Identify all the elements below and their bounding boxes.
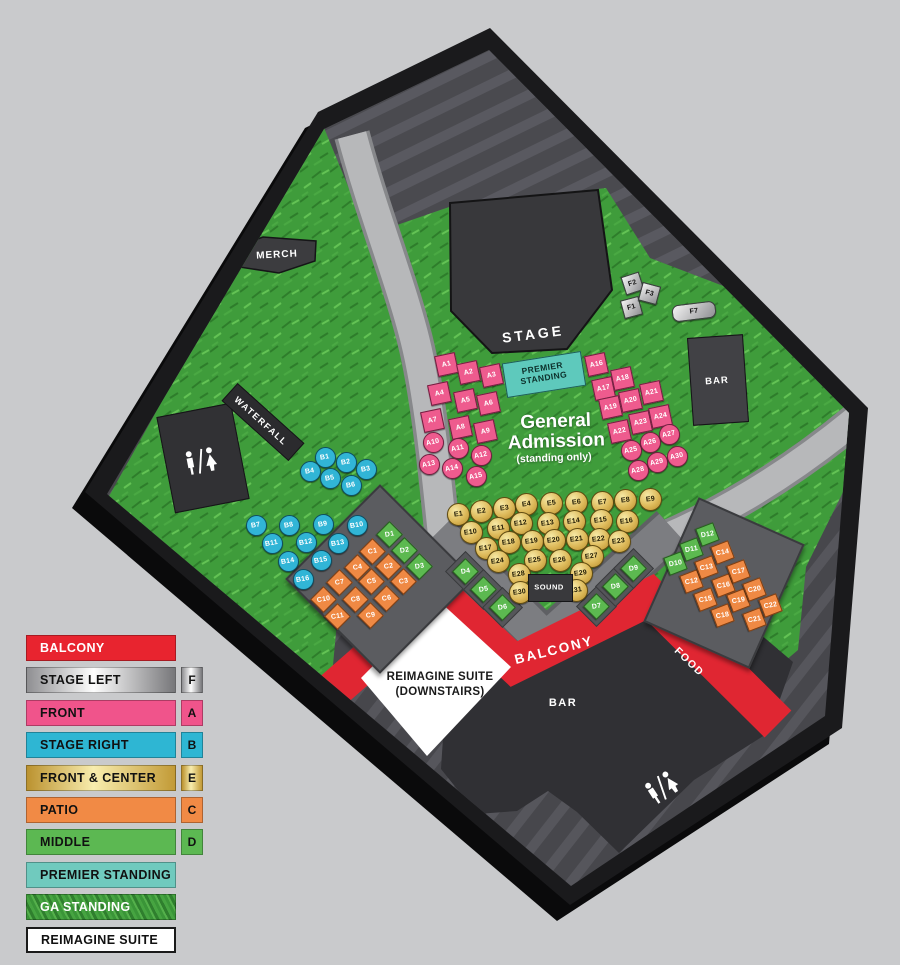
legend-item-balcony: BALCONY [26,635,176,661]
seat-A6[interactable]: A6 [476,391,501,416]
seat-F3[interactable]: F3 [637,281,660,304]
seat-A2[interactable]: A2 [456,360,481,385]
legend-badge-C: C [181,797,203,823]
legend-item-premier-standing: PREMIER STANDING [26,862,176,888]
seat-B10[interactable]: B10 [347,515,368,536]
seat-B2[interactable]: B2 [336,452,357,473]
seat-A29[interactable]: A29 [647,452,668,473]
legend-item-front: FRONT [26,700,176,726]
legend-badge-F: F [181,667,203,693]
seat-E9[interactable]: E9 [639,488,662,511]
legend-item-middle: MIDDLE [26,829,176,855]
seat-B14[interactable]: B14 [278,551,299,572]
legend-badge-E: E [181,765,203,791]
seat-A10[interactable]: A10 [423,432,444,453]
seat-B12[interactable]: B12 [296,532,317,553]
seat-A27[interactable]: A27 [659,424,680,445]
sound-label: SOUND [534,583,564,592]
seat-A28[interactable]: A28 [628,460,649,481]
legend-item-stage-right: STAGE RIGHT [26,732,176,758]
seat-A30[interactable]: A30 [667,446,688,467]
seat-E26[interactable]: E26 [549,549,572,572]
bar-upper-label: BAR [705,375,729,388]
seat-B13[interactable]: B13 [328,533,349,554]
seat-E24[interactable]: E24 [487,550,510,573]
seat-B16[interactable]: B16 [293,569,314,590]
seat-A21[interactable]: A21 [639,380,664,405]
seat-B7[interactable]: B7 [246,515,267,536]
seat-A20[interactable]: A20 [618,388,643,413]
legend-item-patio: PATIO [26,797,176,823]
legend-badge-A: A [181,700,203,726]
legend-badge-D: D [181,829,203,855]
seat-A7[interactable]: A7 [420,408,445,433]
seat-A4[interactable]: A4 [427,381,452,406]
general-admission-title: General Admission [493,410,619,454]
legend-item-ga-standing: GA STANDING [26,894,176,920]
reimagine-suite-label: REIMAGINE SUITE (DOWNSTAIRS) [384,670,496,700]
seat-A8[interactable]: A8 [448,415,473,440]
seat-B6[interactable]: B6 [341,475,362,496]
seat-A5[interactable]: A5 [453,388,478,413]
seat-B3[interactable]: B3 [356,459,377,480]
seat-A15[interactable]: A15 [466,466,487,487]
seat-E23[interactable]: E23 [608,530,631,553]
seat-A1[interactable]: A1 [434,352,459,377]
seat-B8[interactable]: B8 [279,515,300,536]
seat-A16[interactable]: A16 [584,352,609,377]
venue-seating-map: MERCH STAGE PREMIER STANDING General Adm… [0,0,900,965]
legend-item-reimagine-suite: REIMAGINE SUITE [26,927,176,953]
seat-A12[interactable]: A12 [471,445,492,466]
seat-A11[interactable]: A11 [448,438,469,459]
seat-A18[interactable]: A18 [610,366,635,391]
seat-B11[interactable]: B11 [262,533,283,554]
seat-A25[interactable]: A25 [621,440,642,461]
legend-badge-B: B [181,732,203,758]
bar-lower-label: BAR [549,697,577,709]
merch-label: MERCH [256,248,298,261]
legend-item-front-center: FRONT & CENTER [26,765,176,791]
seat-B4[interactable]: B4 [300,461,321,482]
seat-A14[interactable]: A14 [442,458,463,479]
seat-B9[interactable]: B9 [313,514,334,535]
seat-A13[interactable]: A13 [419,454,440,475]
seat-A26[interactable]: A26 [640,432,661,453]
seat-A3[interactable]: A3 [479,363,504,388]
seat-B15[interactable]: B15 [311,550,332,571]
legend-item-stage-left: STAGE LEFT [26,667,176,693]
seat-B5[interactable]: B5 [320,468,341,489]
seat-E8[interactable]: E8 [614,489,637,512]
